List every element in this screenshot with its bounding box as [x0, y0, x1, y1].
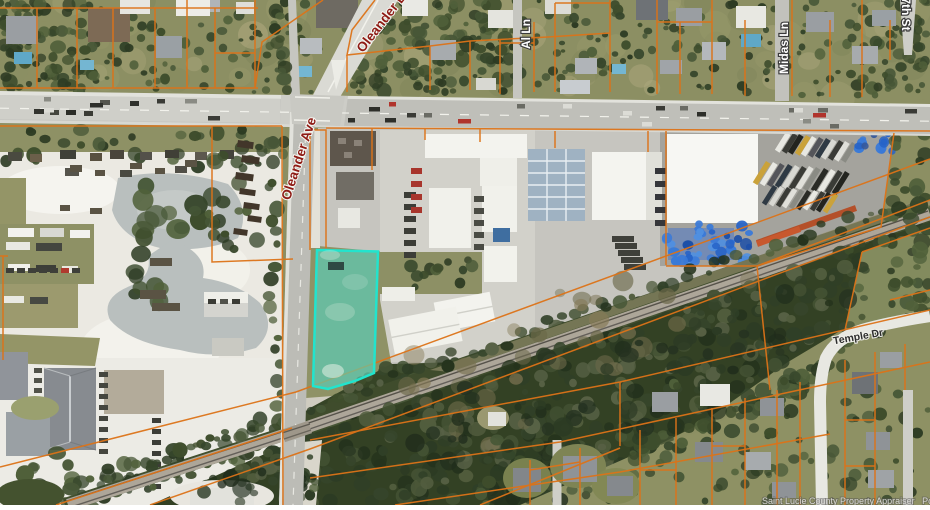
- svg-text:7th St: 7th St: [899, 0, 913, 31]
- svg-text:Saint Lucie County Property Ap: Saint Lucie County Property Appraiser Po…: [762, 496, 930, 505]
- svg-text:Midas Ln: Midas Ln: [777, 22, 791, 74]
- svg-text:Al Ln: Al Ln: [519, 19, 533, 49]
